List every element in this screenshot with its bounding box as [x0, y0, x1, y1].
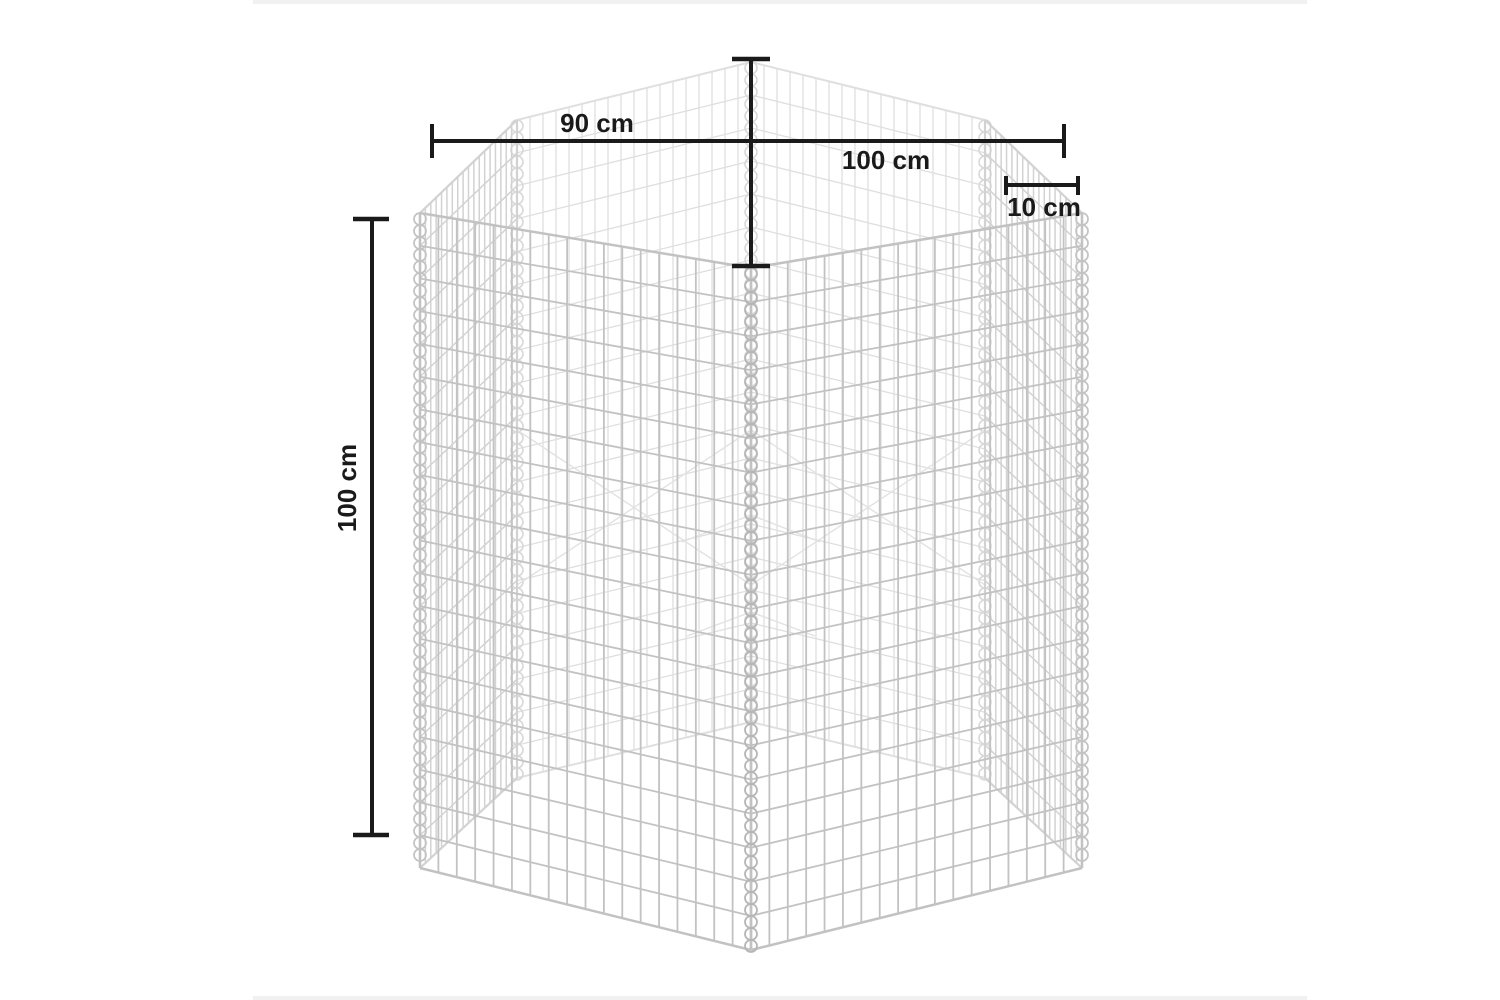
- dimension-height: 100 cm: [332, 219, 389, 835]
- dimension-label-wall-offset: 10 cm: [1007, 192, 1081, 222]
- dimension-label-top-inner-width: 90 cm: [560, 108, 634, 138]
- product-image-canvas: 90 cm 100 cm 10 cm 100 cm: [0, 0, 1500, 1000]
- image-edge-strip-top: [253, 0, 1307, 4]
- image-edge-strip-bottom: [253, 996, 1307, 1000]
- dimension-label-top-outer-width: 100 cm: [842, 145, 930, 175]
- gabion-dimension-diagram: 90 cm 100 cm 10 cm 100 cm: [0, 0, 1500, 1000]
- dimension-label-height: 100 cm: [332, 444, 362, 532]
